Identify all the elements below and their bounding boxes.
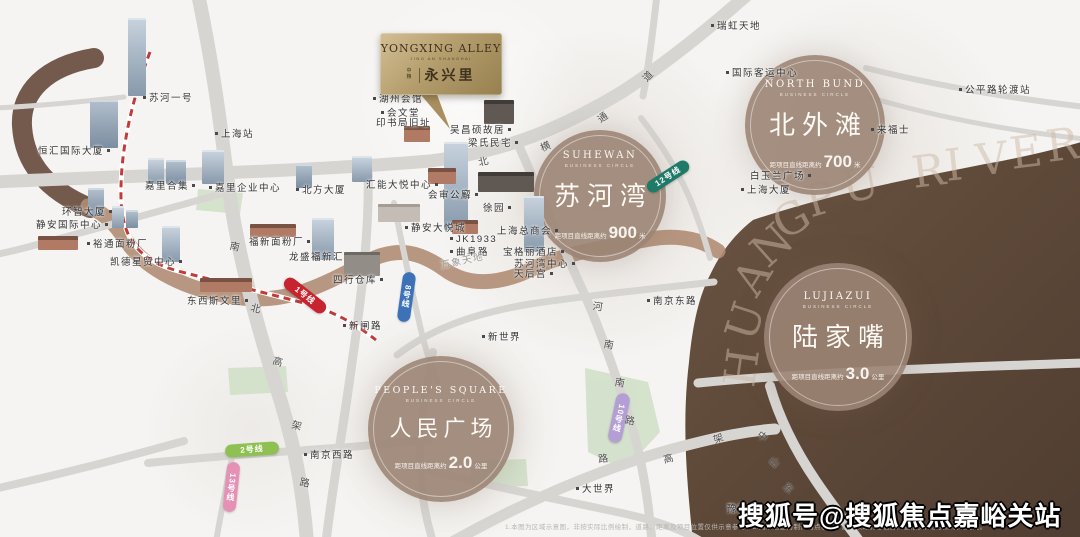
poi-dot xyxy=(721,507,724,510)
poi-dot xyxy=(107,149,110,152)
map-canvas: HUANGPURIVER SUHEWAN BUSINESS CIRCLE 苏河湾… xyxy=(0,0,1080,537)
poi-label: 公平路轮渡站 xyxy=(956,82,1031,96)
poi-label: 苏河一号 xyxy=(140,90,193,104)
poi-label: 凯德星贸中心 xyxy=(110,254,185,268)
poi-label: 嘉里合集 xyxy=(145,178,198,192)
poi-label: 徐园 xyxy=(483,200,514,214)
poi-dot xyxy=(307,240,310,243)
building-icon xyxy=(444,142,468,230)
poi-label: 会审公廨 xyxy=(428,187,481,201)
circle-subtitle: BUSINESS CIRCLE xyxy=(565,163,636,168)
watermark: 搜狐号@搜狐焦点嘉峪关站 xyxy=(738,496,1061,533)
poi-dot xyxy=(296,188,299,191)
building-icon xyxy=(484,100,514,124)
circle-title-en: PEOPLE'S SQUARE xyxy=(374,385,507,396)
poi-dot xyxy=(405,226,408,229)
business-circle-suhewan: SUHEWAN BUSINESS CIRCLE 苏河湾 距项目直线距离约900米 xyxy=(534,130,666,262)
poi-dot xyxy=(245,299,248,302)
poi-dot xyxy=(508,206,511,209)
business-circle-lujiazui: LUJIAZUI BUSINESS CIRCLE 陆家嘴 距项目直线距离约3.0… xyxy=(764,263,912,411)
poi-label: 南京东路 xyxy=(644,293,697,307)
poi-dot xyxy=(304,453,307,456)
poi-dot xyxy=(808,174,811,177)
poi-dot xyxy=(475,193,478,196)
poi-label: 嘉里企业中心 xyxy=(206,180,281,194)
poi-label: 龙盛福新汇 xyxy=(289,249,344,263)
poi-dot xyxy=(435,183,438,186)
circle-title-en: LUJIAZUI xyxy=(804,291,873,302)
poi-dot xyxy=(515,141,518,144)
poi-dot xyxy=(215,132,218,135)
poi-label: 东西斯文里 xyxy=(187,293,251,307)
poi-dot xyxy=(450,237,453,240)
poi-dot xyxy=(381,111,384,114)
circle-title-zh: 人民广场 xyxy=(384,411,497,443)
poi-label: 新闸路 xyxy=(340,318,382,332)
road-name-char: 路 xyxy=(597,450,609,466)
business-circle-peoples-square: PEOPLE'S SQUARE BUSINESS CIRCLE 人民广场 距项目… xyxy=(368,356,514,502)
building-icon xyxy=(200,278,252,292)
road-name-char: 河 xyxy=(592,297,604,313)
building-icon xyxy=(90,100,118,148)
poi-label: 白玉兰广场 xyxy=(750,168,814,182)
poi-label: 大世界 xyxy=(573,481,615,495)
building-icon xyxy=(478,172,534,192)
building-icon xyxy=(38,236,78,250)
poi-dot xyxy=(373,97,376,100)
poi-label: 来福士 xyxy=(868,122,910,136)
circle-subtitle: BUSINESS CIRCLE xyxy=(780,92,851,97)
poi-label: 恒汇国际大厦 xyxy=(38,143,113,157)
poi-dot xyxy=(179,260,182,263)
poi-label: 南京西路 xyxy=(301,447,354,461)
building-icon xyxy=(128,18,146,96)
project-name-zh: 永兴里 xyxy=(425,65,476,85)
poi-label: 印书局旧址 xyxy=(376,115,431,129)
poi-label: 瑞虹天地 xyxy=(708,18,761,32)
badge-divider xyxy=(419,68,420,83)
poi-label: 天后宫 xyxy=(514,266,556,280)
poi-dot xyxy=(871,128,874,131)
poi-label: 福新面粉厂 xyxy=(249,234,313,248)
poi-label: 静安国际中心 xyxy=(36,217,111,231)
poi-dot xyxy=(109,210,112,213)
poi-label: 梁氏民宅 xyxy=(468,135,521,149)
poi-label: 上海大厦 xyxy=(738,182,791,196)
circle-title-zh: 苏河湾 xyxy=(547,176,653,213)
poi-dot xyxy=(209,186,212,189)
poi-dot xyxy=(192,184,195,187)
poi-dot xyxy=(572,262,575,265)
circle-title-zh: 北外滩 xyxy=(762,105,868,142)
poi-label: 新世界 xyxy=(479,329,521,343)
poi-dot xyxy=(482,335,485,338)
poi-dot xyxy=(87,242,90,245)
project-badge: YONGXING ALLEY JING AN SHANGHAI 中粮 永兴里 xyxy=(380,33,502,95)
poi-dot xyxy=(959,88,962,91)
poi-label: 环智大厦 xyxy=(62,204,115,218)
circle-title-zh: 陆家嘴 xyxy=(785,317,891,354)
circle-subtitle: BUSINESS CIRCLE xyxy=(803,304,874,309)
circle-title-en: SUHEWAN xyxy=(563,150,638,161)
circle-distance: 距项目直线距离约3.0公里 xyxy=(792,364,885,384)
poi-label: 国际客运中心 xyxy=(723,65,798,79)
poi-dot xyxy=(105,223,108,226)
poi-dot xyxy=(647,299,650,302)
poi-dot xyxy=(508,128,511,131)
circle-subtitle: BUSINESS CIRCLE xyxy=(406,398,477,403)
poi-label: 吴昌硕故居 xyxy=(450,122,514,136)
project-subtitle: JING AN SHANGHAI xyxy=(410,56,472,61)
poi-dot xyxy=(555,229,558,232)
poi-dot xyxy=(726,71,729,74)
poi-dot xyxy=(741,188,744,191)
poi-dot xyxy=(576,487,579,490)
poi-dot xyxy=(450,250,453,253)
poi-dot xyxy=(561,250,564,253)
circle-distance: 距项目直线距离约2.0公里 xyxy=(395,453,488,473)
poi-dot xyxy=(343,324,346,327)
circle-title-en: NORTH BUND xyxy=(765,79,865,90)
circle-distance: 距项目直线距离约900米 xyxy=(555,223,646,243)
poi-dot xyxy=(143,96,146,99)
project-name-en: YONGXING ALLEY xyxy=(381,42,502,55)
building-icon xyxy=(202,150,224,184)
poi-label: 北方大厦 xyxy=(293,182,346,196)
poi-label: 静安大悦城 xyxy=(402,220,466,234)
poi-dot xyxy=(711,24,714,27)
building-icon xyxy=(126,210,138,228)
poi-label: 上海总商会 xyxy=(497,223,561,237)
poi-label: 四行仓库 xyxy=(333,272,386,286)
brand-logo: 中粮 xyxy=(407,69,414,81)
poi-label: 上海站 xyxy=(212,126,254,140)
poi-label: 裕通面粉厂 xyxy=(84,236,148,250)
poi-dot xyxy=(380,278,383,281)
poi-dot xyxy=(550,272,553,275)
